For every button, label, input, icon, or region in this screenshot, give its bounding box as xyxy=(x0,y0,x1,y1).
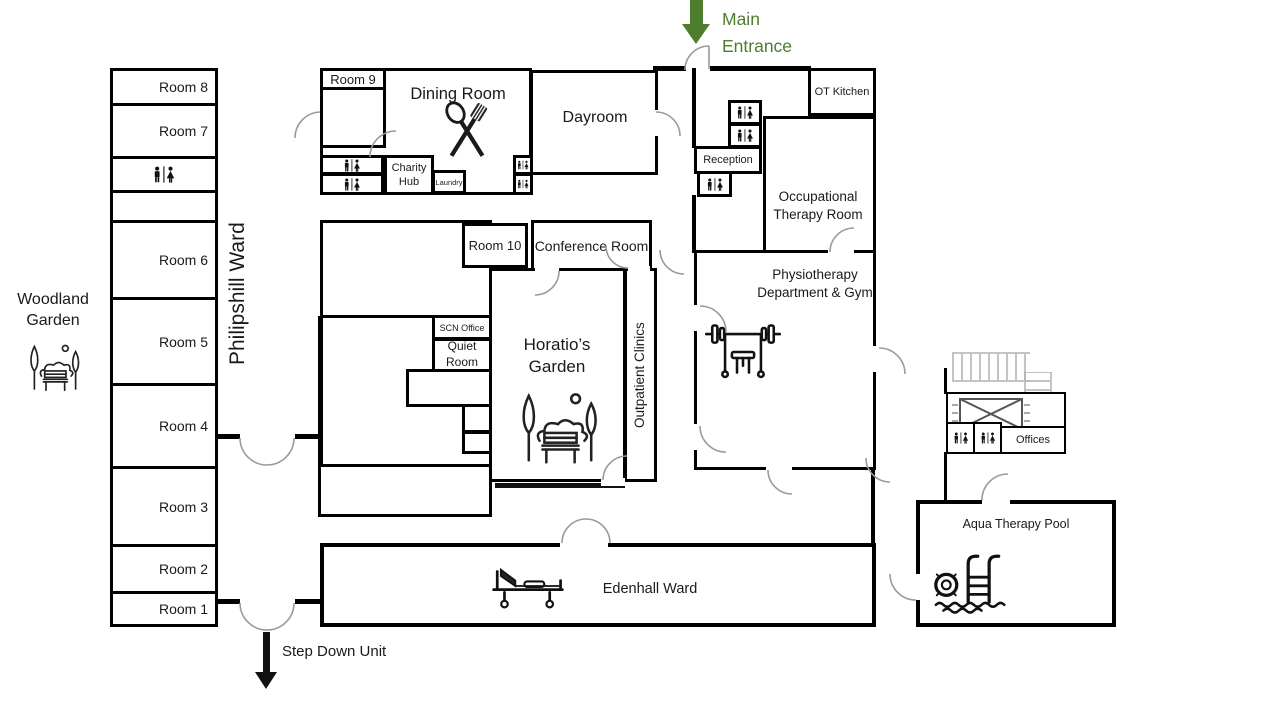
wc-icon xyxy=(151,166,177,183)
dining-icon xyxy=(434,98,500,164)
edenhall-ward-label: Edenhall Ward xyxy=(590,580,710,599)
room-10: Room 10 xyxy=(462,223,528,268)
door-gap xyxy=(871,346,879,372)
room-9-labelbox: Room 9 xyxy=(320,68,386,90)
room-3-label: Room 3 xyxy=(159,499,208,515)
wc-icon xyxy=(735,106,755,119)
wall-segment xyxy=(710,66,811,71)
lobby-wc-1 xyxy=(728,100,762,125)
ward-toilet xyxy=(110,156,218,193)
conference-room-label: Conference Room xyxy=(535,237,649,255)
room-7-label: Room 7 xyxy=(159,123,208,139)
small-unlabeled-room-1 xyxy=(406,369,492,407)
offices-label: Offices xyxy=(1016,434,1050,446)
wc-icon xyxy=(735,129,755,142)
bottom-unlabeled-room xyxy=(318,464,492,517)
room-5-label: Room 5 xyxy=(159,334,208,350)
stairs-icon xyxy=(952,352,1030,382)
door-gap xyxy=(535,268,559,275)
scn-office: SCN Office xyxy=(432,315,492,340)
annex-wc-2 xyxy=(973,422,1002,454)
wall-segment xyxy=(944,452,947,502)
quiet-room-label: Quiet Room xyxy=(435,339,489,370)
occupational-therapy-room xyxy=(763,116,876,253)
floor-plan: Room 8 Room 7 Room 6 Room 5 Room 4 Room … xyxy=(0,0,1280,720)
room-5: Room 5 xyxy=(110,297,218,386)
door-gap xyxy=(601,478,625,486)
ot-kitchen: OT Kitchen xyxy=(808,68,876,116)
small-unlabeled-room-2 xyxy=(462,404,492,433)
room-4-label: Room 4 xyxy=(159,418,208,434)
room-2: Room 2 xyxy=(110,544,218,594)
garden-icon xyxy=(26,338,84,400)
door-gap xyxy=(766,466,792,474)
wc-icon xyxy=(705,178,725,191)
wc-icon xyxy=(516,179,530,189)
dayroom-wc-2 xyxy=(513,173,533,195)
door-gap xyxy=(982,497,1010,504)
reception-wc xyxy=(697,171,732,197)
step-down-unit-label: Step Down Unit xyxy=(282,642,392,662)
door-gap xyxy=(560,541,608,548)
down-arrow-icon xyxy=(255,672,277,689)
main-entrance-label: Main Entrance xyxy=(722,6,816,60)
door-gap xyxy=(691,305,699,331)
charity-hub: Charity Hub xyxy=(384,155,434,195)
scn-office-label: SCN Office xyxy=(440,323,485,333)
conference-room: Conference Room xyxy=(531,220,652,272)
laundry: Laundry xyxy=(432,170,466,194)
horatios-garden-label: Horatio’s Garden xyxy=(504,334,610,378)
door-gap xyxy=(828,249,854,256)
room-7: Room 7 xyxy=(110,103,218,159)
room-3: Room 3 xyxy=(110,466,218,547)
dining-wc-2 xyxy=(320,173,384,195)
occupational-therapy-label: Occupational Therapy Room xyxy=(756,188,880,223)
room-2-label: Room 2 xyxy=(159,561,208,577)
wall-segment xyxy=(318,316,323,466)
down-arrow-icon xyxy=(682,24,710,44)
small-unlabeled-room-3 xyxy=(462,431,492,454)
wall-segment xyxy=(871,470,875,543)
laundry-label: Laundry xyxy=(435,178,462,187)
wc-icon xyxy=(342,159,362,172)
ward-unlabeled-room xyxy=(110,190,218,223)
bed-icon xyxy=(490,560,566,612)
annex-wc-1 xyxy=(946,422,975,454)
door-gap xyxy=(652,110,659,136)
wc-icon xyxy=(516,160,530,170)
room-6-label: Room 6 xyxy=(159,252,208,268)
wall-segment xyxy=(692,68,696,148)
door-gap xyxy=(691,424,699,450)
wall-segment xyxy=(692,195,696,253)
room-1: Room 1 xyxy=(110,591,218,627)
wc-icon xyxy=(342,178,362,191)
room-8: Room 8 xyxy=(110,68,218,106)
reception: Reception xyxy=(694,146,762,174)
aqua-therapy-pool-label: Aqua Therapy Pool xyxy=(946,516,1086,532)
door-gap xyxy=(628,266,650,272)
wall-segment xyxy=(653,66,686,71)
gym-icon xyxy=(702,320,784,384)
garden-icon xyxy=(516,390,604,470)
room-8-label: Room 8 xyxy=(159,79,208,95)
charity-hub-label: Charity Hub xyxy=(387,161,431,190)
room-1-label: Room 1 xyxy=(159,601,208,617)
dining-wc-1 xyxy=(320,155,384,175)
wc-icon xyxy=(952,432,970,444)
pool-icon xyxy=(932,550,1012,614)
wc-icon xyxy=(979,432,997,444)
reception-label: Reception xyxy=(703,154,753,166)
wall-segment xyxy=(218,434,240,439)
offices: Offices xyxy=(1000,426,1066,454)
main-entrance-arrow-shaft xyxy=(690,0,703,26)
outpatient-clinics-label: Outpatient Clinics xyxy=(632,284,647,466)
wall-segment xyxy=(218,599,240,604)
step-down-arrow-shaft xyxy=(263,632,270,674)
quiet-room: Quiet Room xyxy=(432,338,492,372)
room-10-label: Room 10 xyxy=(469,238,522,253)
room-4: Room 4 xyxy=(110,383,218,469)
wall-segment xyxy=(295,599,322,604)
ot-kitchen-label: OT Kitchen xyxy=(815,85,870,99)
physiotherapy-label: Physiotherapy Department & Gym xyxy=(743,266,887,301)
dayroom-wc-1 xyxy=(513,155,533,175)
room-6: Room 6 xyxy=(110,220,218,300)
lobby-wc-2 xyxy=(728,123,762,148)
woodland-garden-label: Woodland Garden xyxy=(0,290,106,332)
wall-segment xyxy=(944,368,947,394)
philipshill-ward-label: Philipshill Ward xyxy=(226,198,250,390)
room-9-label: Room 9 xyxy=(330,72,376,87)
wall-segment xyxy=(295,434,322,439)
dayroom-label: Dayroom xyxy=(545,108,645,129)
door-gap xyxy=(913,574,920,600)
